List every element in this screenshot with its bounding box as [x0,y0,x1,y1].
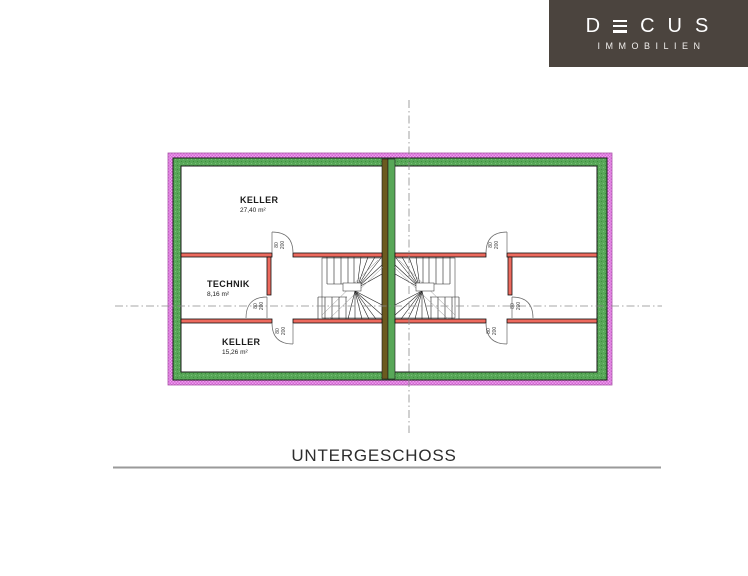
floor-plan-page: KELLER 27,40 m² TECHNIK 8,16 m² KELLER 1… [0,0,748,576]
room-name: TECHNIK [207,280,250,289]
decus-logo: D CUS IMMOBILIEN [549,0,748,67]
brand-letters-cus: CUS [640,16,721,36]
door-height: 200 [492,319,498,343]
party-wall-brown-leaf [382,159,388,379]
door-height: 200 [280,233,286,257]
party-wall-green-leaf [388,159,395,379]
door-height: 200 [281,319,287,343]
door-size-label: 80 200 [510,294,524,318]
room-area: 27,40 m² [240,208,278,215]
wall-left-bottom-a [181,319,272,323]
floor-title: UNTERGESCHOSS [0,446,748,466]
wall-left-bottom-b [293,319,382,323]
wall-right-top-b [507,253,597,257]
room-area: 8,16 m² [207,292,250,299]
door-size-label: 80 200 [274,233,288,257]
floor-plan-drawing [0,0,748,576]
door-size-label: 80 200 [486,319,500,343]
door-height: 200 [259,294,265,318]
stylized-e-icon [613,20,627,33]
door-height: 200 [494,233,500,257]
brand-subtitle: IMMOBILIEN [597,42,705,51]
room-label-keller-top: KELLER 27,40 m² [240,196,278,215]
door-size-label: 80 200 [253,294,267,318]
wall-left-top-b [293,253,382,257]
wall-right-bottom-b [507,319,597,323]
door-size-label: 80 200 [488,233,502,257]
door-size-label: 80 200 [275,319,289,343]
room-area: 15,26 m² [222,350,260,357]
room-label-technik: TECHNIK 8,16 m² [207,280,250,299]
brand-letter-d: D [586,16,613,36]
room-name: KELLER [240,196,278,205]
wall-right-vertical [508,257,512,295]
wall-left-top-a [181,253,272,257]
door-height: 200 [516,294,522,318]
brand-wordmark: D CUS [586,16,722,36]
party-wall [382,159,395,379]
wall-left-vertical [267,257,271,295]
room-name: KELLER [222,338,260,347]
room-label-keller-bottom: KELLER 15,26 m² [222,338,260,357]
